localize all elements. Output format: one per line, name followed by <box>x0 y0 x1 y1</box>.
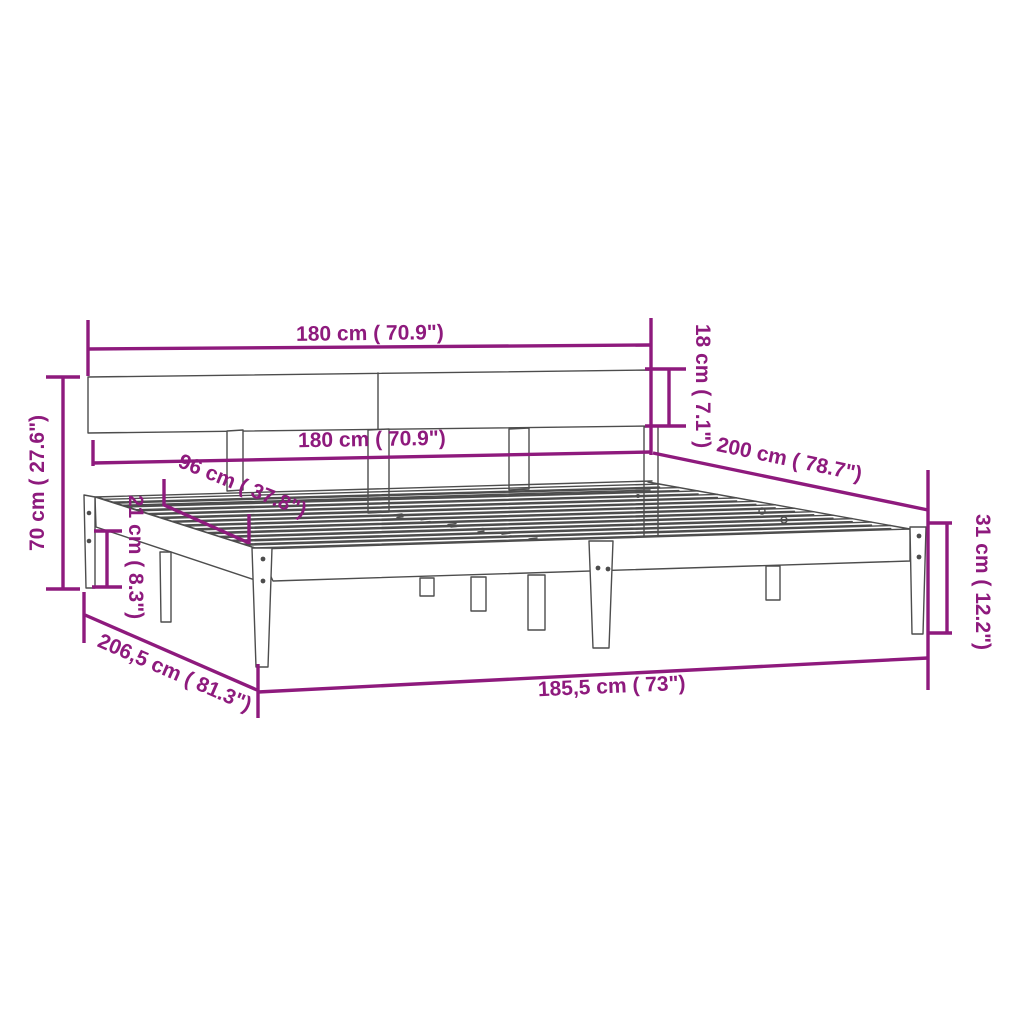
slat-line <box>529 538 537 539</box>
slat-line <box>448 524 456 525</box>
slat-line <box>505 536 511 537</box>
dim-total-height <box>46 377 80 589</box>
dim-under-clearance <box>92 531 122 587</box>
label-mattress-length: 200 cm ( 78.7") <box>715 433 864 486</box>
slat-line <box>478 531 484 532</box>
label-side-rail-height: 31 cm ( 12.2") <box>971 514 994 650</box>
label-headboard-width-top: 180 cm ( 70.9") <box>296 321 444 346</box>
label-total-length: 206,5 cm ( 81.3") <box>94 630 255 717</box>
bed-frame-dimension-drawing: 180 cm ( 70.9") 180 cm ( 70.9") 18 cm ( … <box>0 0 1024 1024</box>
product-dimension-diagram: 180 cm ( 70.9") 180 cm ( 70.9") 18 cm ( … <box>0 0 1024 1024</box>
label-under-clearance: 21 cm ( 8.3") <box>124 495 147 619</box>
foot-center-leg <box>589 541 613 648</box>
headboard <box>88 370 651 433</box>
label-frame-width-inner: 180 cm ( 70.9") <box>298 427 446 453</box>
bed-frame-art <box>84 370 926 667</box>
slat-line <box>394 514 402 515</box>
slat-line <box>421 519 429 520</box>
slat-line <box>502 533 510 534</box>
dim-mattress-length <box>653 453 928 690</box>
slat-line <box>424 522 430 523</box>
slat-line <box>451 526 457 527</box>
slat-line <box>397 517 403 518</box>
dim-side-rail-height <box>928 523 952 633</box>
slat-line <box>475 528 483 529</box>
side-and-foot-rails <box>95 497 910 581</box>
foot-left-leg <box>252 548 272 667</box>
foot-right-leg <box>910 527 926 634</box>
label-total-height: 70 cm ( 27.6") <box>26 415 49 551</box>
label-headboard-panel-height: 18 cm ( 7.1") <box>691 324 714 448</box>
